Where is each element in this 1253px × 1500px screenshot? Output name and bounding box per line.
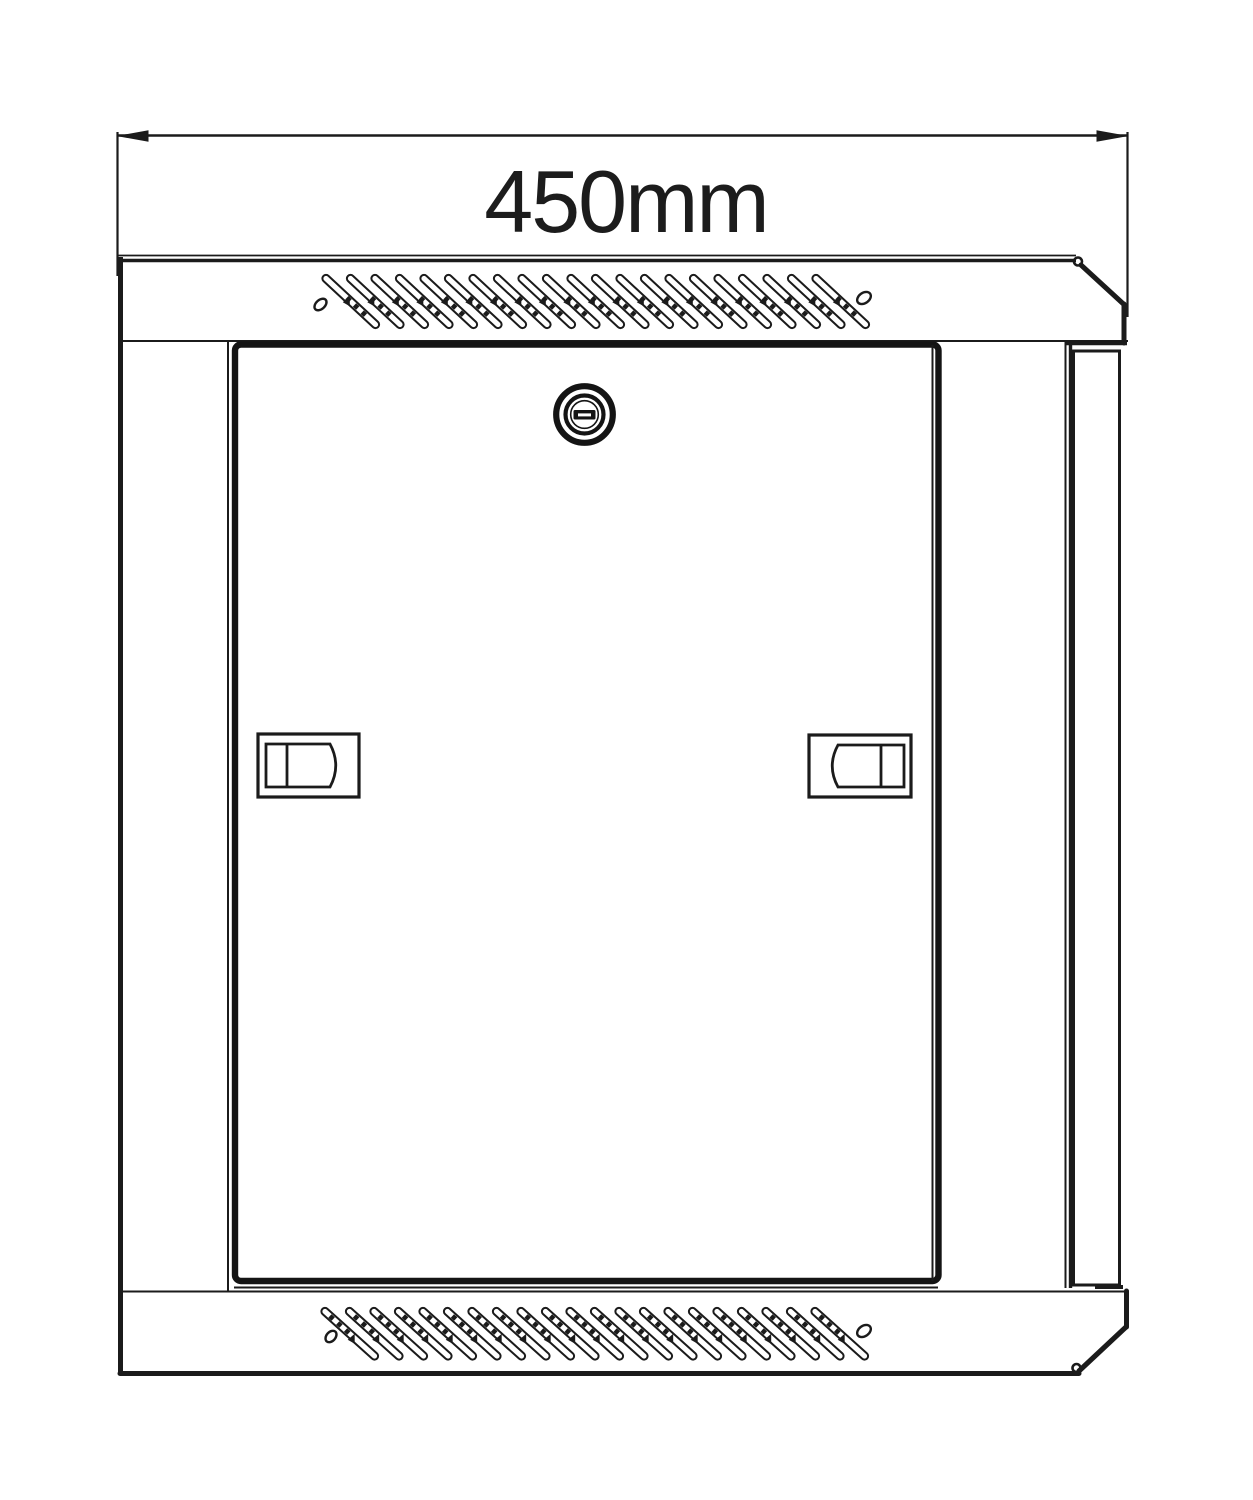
svg-text:450mm: 450mm [484, 152, 767, 251]
